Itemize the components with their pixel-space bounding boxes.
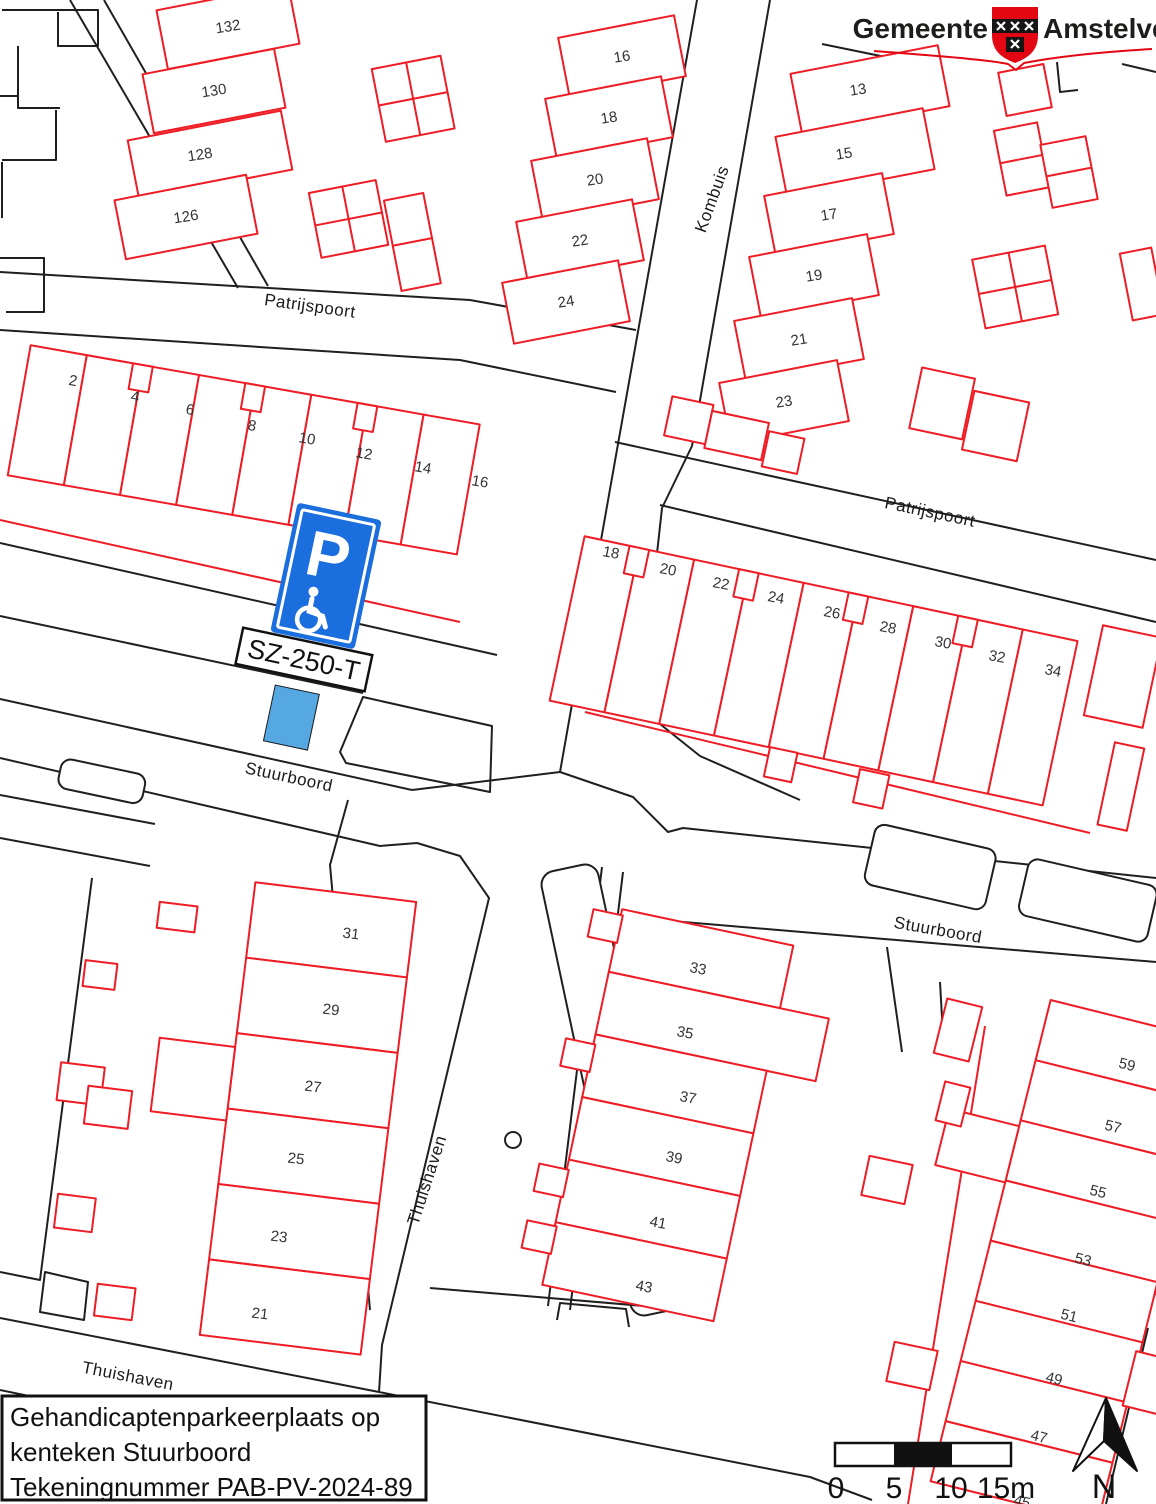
street-label: Patrijspoort xyxy=(263,290,357,322)
title-line-1: Gehandicaptenparkeerplaats op xyxy=(10,1402,380,1432)
map: Patrijspoort Kombuis Patrijspoort Stuurb… xyxy=(0,0,1156,1504)
house-number: 33 xyxy=(688,959,708,979)
house-number: 22 xyxy=(711,574,731,594)
logo-text-gemeente: Gemeente xyxy=(853,13,988,44)
house-number: 10 xyxy=(297,429,316,449)
street-label: Kombuis xyxy=(691,163,733,235)
house-number: 23 xyxy=(774,392,793,411)
house-number: 34 xyxy=(1043,661,1063,681)
amstelveen-crest-icon xyxy=(992,7,1038,63)
house-number: 16 xyxy=(612,47,631,66)
title-line-3: Tekeningnummer PAB-PV-2024-89 xyxy=(10,1472,413,1502)
house-number: 12 xyxy=(354,444,373,464)
scale-label-0: 0 xyxy=(828,1472,845,1504)
house-number: 20 xyxy=(585,170,604,189)
house-number: 19 xyxy=(804,266,823,285)
house-number: 35 xyxy=(675,1023,695,1043)
house-number: 16 xyxy=(470,472,489,492)
house-number: 22 xyxy=(570,231,589,250)
house-number: 21 xyxy=(789,330,808,349)
scale-label-15m: 15m xyxy=(977,1472,1035,1504)
street-label: Thuishaven xyxy=(404,1133,451,1227)
house-number: 18 xyxy=(601,543,621,563)
house-number: 26 xyxy=(822,603,842,623)
house-number: 41 xyxy=(648,1213,668,1233)
house-number: 30 xyxy=(933,633,953,653)
house-number: 37 xyxy=(678,1088,698,1108)
house-number: 21 xyxy=(251,1305,270,1324)
house-number: 24 xyxy=(556,292,575,311)
title-block: Gehandicaptenparkeerplaats op kenteken S… xyxy=(2,1396,426,1502)
house-number: 39 xyxy=(664,1148,684,1168)
north-label: N xyxy=(1092,1468,1117,1504)
house-number: 28 xyxy=(878,618,898,638)
house-number: 29 xyxy=(322,1001,341,1020)
house-number: 17 xyxy=(819,205,838,224)
house-number: 27 xyxy=(304,1078,323,1097)
house-number: 24 xyxy=(766,588,786,608)
scale-label-10: 10 xyxy=(934,1472,967,1504)
house-number: 14 xyxy=(413,458,432,478)
lamppost-marker xyxy=(505,1132,521,1148)
house-number: 25 xyxy=(287,1150,306,1169)
scale-label-5: 5 xyxy=(886,1472,903,1504)
house-number: 23 xyxy=(270,1228,289,1247)
house-number: 20 xyxy=(658,560,678,580)
street-label: Patrijspoort xyxy=(883,493,977,531)
street-label: Stuurboord xyxy=(892,913,983,947)
map-canvas: Patrijspoort Kombuis Patrijspoort Stuurb… xyxy=(0,0,1156,1504)
house-number: 15 xyxy=(834,144,853,163)
title-line-2: kenteken Stuurboord xyxy=(10,1437,251,1467)
house-number: 18 xyxy=(599,108,618,127)
house-number: 31 xyxy=(342,925,361,944)
street-label: Thuishaven xyxy=(81,1358,176,1394)
parking-space xyxy=(263,685,319,750)
house-number: 13 xyxy=(848,80,867,99)
house-number: 32 xyxy=(987,647,1007,667)
street-label: Stuurboord xyxy=(243,758,334,795)
logo-text-amstelveen: Amstelveen xyxy=(1043,13,1156,44)
house-number: 43 xyxy=(634,1277,654,1297)
